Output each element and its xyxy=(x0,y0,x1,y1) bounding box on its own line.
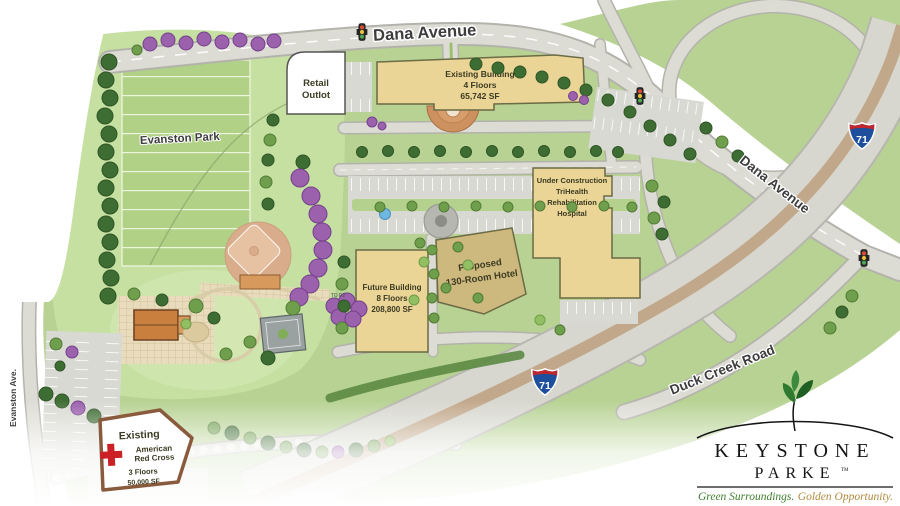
retail-outlot-label-line1: Retail xyxy=(303,78,329,89)
trihealth-label-line1: Under Construction xyxy=(537,176,608,185)
to-p2-sign: TO P2 xyxy=(331,293,346,299)
existing-building-label-line2: 4 Floors xyxy=(463,80,496,90)
basketball-court xyxy=(260,314,306,354)
retail-outlot-label-line2: Outlot xyxy=(302,90,331,101)
logo-tagline-gold: Golden Opportunity. xyxy=(798,491,893,503)
logo-name-bottom: PARKE xyxy=(755,465,836,482)
future-building-label-line1: Future Building xyxy=(362,283,421,292)
red-cross-label-floors: 3 Floors xyxy=(128,466,158,477)
red-cross-label-existing: Existing xyxy=(119,428,160,442)
logo-name-top: KEYSTONE xyxy=(714,440,875,462)
future-building-label-line3: 208,800 SF xyxy=(371,305,412,314)
logo-tagline-green: Green Surroundings. xyxy=(698,491,794,503)
site-plan-svg: 71 xyxy=(0,0,900,506)
retail-outlot-building: Retail Outlot xyxy=(287,52,345,114)
future-building-label-line2: 8 Floors xyxy=(376,294,408,303)
existing-building-label-line3: 65,742 SF xyxy=(460,91,499,101)
existing-building-label-line1: Existing Building xyxy=(445,69,514,79)
evanston-ave-label: Evanston Ave. xyxy=(8,369,18,427)
trihealth-label-line2: TriHealth xyxy=(556,187,589,196)
parking-lot-hospital-south xyxy=(560,300,638,324)
logo-trademark: TM xyxy=(841,468,849,473)
site-plan-map: 71 xyxy=(0,0,900,506)
